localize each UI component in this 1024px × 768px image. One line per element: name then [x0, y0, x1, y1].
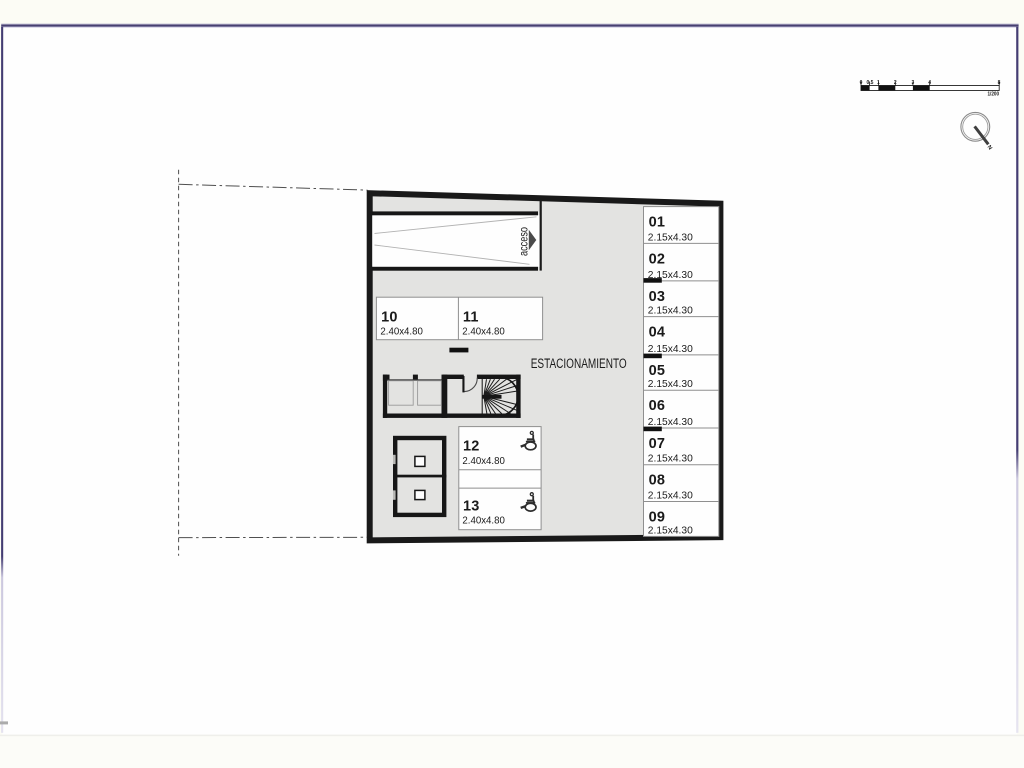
svg-text:2.15x4.30: 2.15x4.30	[648, 417, 693, 428]
svg-text:2.15x4.30: 2.15x4.30	[648, 490, 693, 501]
svg-text:8: 8	[998, 80, 1001, 86]
svg-text:08: 08	[649, 473, 666, 489]
svg-text:2.15x4.30: 2.15x4.30	[648, 379, 693, 390]
svg-text:12: 12	[463, 439, 480, 455]
svg-text:1: 1	[877, 80, 880, 86]
svg-text:2.40x4.80: 2.40x4.80	[462, 516, 505, 527]
svg-text:2.15x4.30: 2.15x4.30	[648, 525, 693, 536]
svg-text:10: 10	[381, 310, 398, 326]
svg-text:01: 01	[649, 215, 666, 231]
svg-text:11: 11	[463, 310, 479, 326]
svg-text:1/200: 1/200	[988, 91, 1000, 97]
svg-text:07: 07	[649, 436, 666, 452]
svg-text:2.15x4.30: 2.15x4.30	[648, 454, 693, 465]
svg-text:2.40x4.80: 2.40x4.80	[462, 456, 505, 467]
svg-text:06: 06	[649, 398, 666, 414]
svg-text:0.5: 0.5	[867, 80, 874, 86]
svg-text:02: 02	[649, 251, 666, 267]
svg-text:2.15x4.30: 2.15x4.30	[648, 306, 693, 317]
svg-text:acceso: acceso	[519, 227, 531, 256]
svg-text:05: 05	[649, 363, 666, 379]
svg-text:04: 04	[649, 325, 666, 341]
svg-text:2.40x4.80: 2.40x4.80	[380, 326, 423, 337]
svg-text:09: 09	[649, 509, 666, 525]
svg-text:3: 3	[912, 80, 915, 86]
svg-text:2.40x4.80: 2.40x4.80	[462, 326, 505, 337]
svg-text:2.15x4.30: 2.15x4.30	[648, 344, 693, 355]
svg-text:4: 4	[928, 80, 931, 86]
svg-text:ESTACIONAMIENTO: ESTACIONAMIENTO	[531, 356, 627, 372]
svg-text:0: 0	[860, 80, 863, 86]
svg-text:2: 2	[894, 80, 897, 86]
svg-text:03: 03	[649, 289, 666, 305]
svg-text:13: 13	[463, 499, 480, 515]
svg-text:2.15x4.30: 2.15x4.30	[648, 232, 693, 243]
